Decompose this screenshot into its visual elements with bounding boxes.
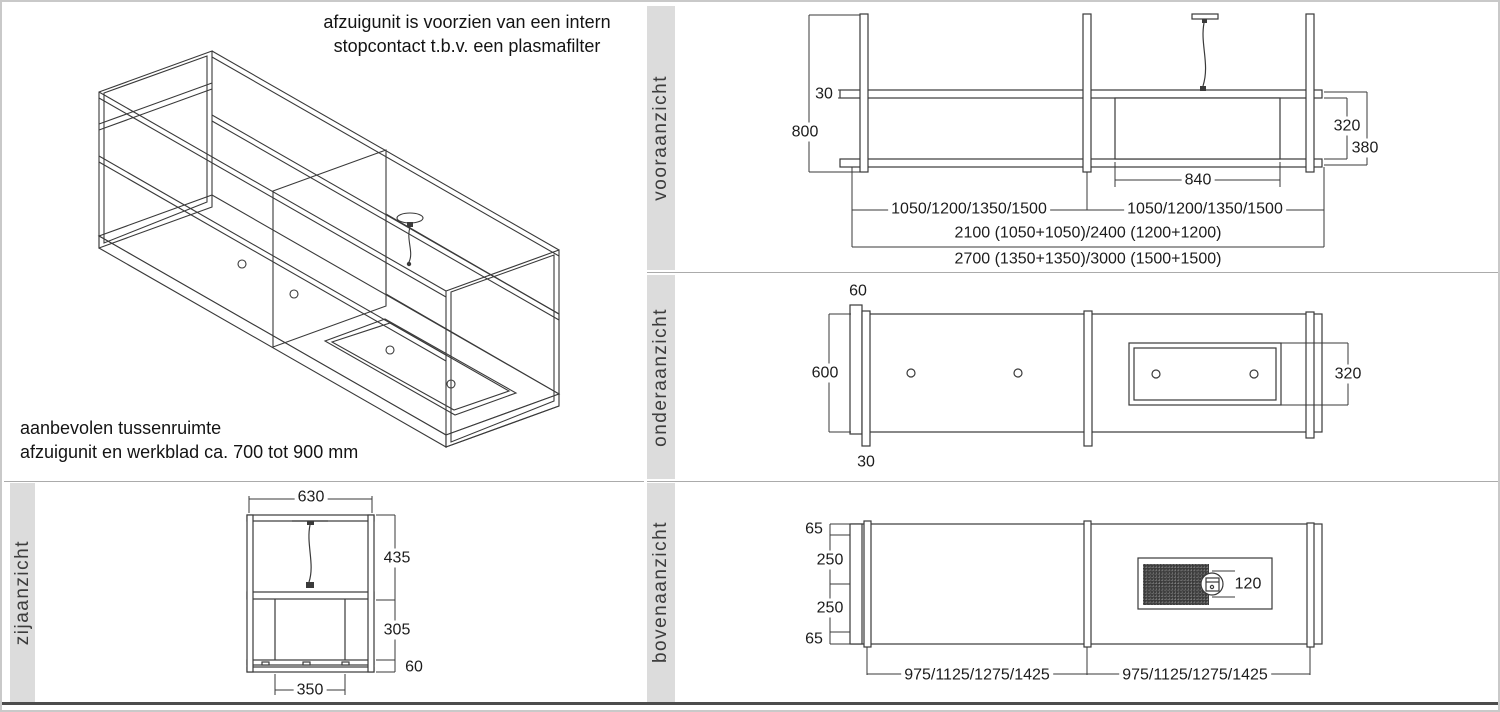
side-view-drawing — [247, 496, 395, 695]
dim-under-filter-depth: 320 — [1332, 365, 1365, 384]
iso-hint-line1: aanbevolen tussenruimte — [20, 416, 358, 440]
view-label-vooraanzicht: vooraanzicht — [650, 75, 672, 201]
divider-front-under — [647, 272, 1500, 273]
dim-front-unit-width: 840 — [1182, 171, 1215, 190]
dim-front-unit-total-height: 380 — [1349, 139, 1382, 158]
dim-top-bay-right: 975/1125/1275/1425 — [1119, 666, 1271, 685]
dim-side-inner-width: 350 — [294, 681, 327, 700]
dim-under-rail-width: 60 — [846, 282, 870, 301]
dim-front-bay-right: 1050/1200/1350/1500 — [1124, 200, 1286, 219]
dim-top-edge-bottom: 65 — [802, 630, 826, 649]
view-label-bovenaanzicht: bovenaanzicht — [650, 521, 672, 663]
dim-under-post-width: 30 — [854, 453, 878, 472]
dim-front-unit-height: 320 — [1331, 117, 1364, 136]
iso-note-line2: stopcontact t.b.v. een plasmafilter — [272, 34, 662, 58]
view-label-onderaanzicht: onderaanzicht — [650, 308, 672, 447]
dim-side-lower-height: 305 — [381, 621, 414, 640]
dim-top-edge-top: 65 — [802, 520, 826, 539]
under-view-drawing — [829, 305, 1348, 446]
dim-side-upper-height: 435 — [381, 549, 414, 568]
dim-top-bay-left: 975/1125/1275/1425 — [901, 666, 1053, 685]
dim-side-rail-height: 60 — [402, 658, 426, 677]
view-label-bar-top: bovenaanzicht — [647, 483, 675, 702]
view-label-bar-under: onderaanzicht — [647, 275, 675, 479]
isometric-drawing — [99, 51, 559, 447]
view-label-bar-side: zijaanzicht — [10, 483, 35, 702]
view-label-zijaanzicht: zijaanzicht — [12, 540, 34, 645]
iso-hint-line2: afzuigunit en werkblad ca. 700 tot 900 m… — [20, 440, 358, 464]
dim-front-frame-height: 800 — [789, 123, 822, 142]
dim-front-totals-b: 2700 (1350+1350)/3000 (1500+1500) — [952, 250, 1225, 269]
bottom-rule — [2, 702, 1500, 705]
technical-drawing-page: vooraanzicht onderaanzicht bovenaanzicht… — [0, 0, 1500, 712]
divider-iso-side — [4, 481, 644, 482]
divider-under-top — [647, 481, 1500, 482]
iso-note-line1: afzuigunit is voorzien van een intern — [272, 10, 662, 34]
iso-note: afzuigunit is voorzien van een intern st… — [272, 10, 662, 58]
dim-under-depth: 600 — [809, 364, 842, 383]
dim-front-rail-height: 30 — [812, 85, 836, 104]
drawing-linework — [2, 2, 1500, 712]
dim-front-totals-a: 2100 (1050+1050)/2400 (1200+1200) — [952, 224, 1225, 243]
top-view-drawing — [830, 521, 1322, 675]
dim-front-bay-left: 1050/1200/1350/1500 — [888, 200, 1050, 219]
iso-hint: aanbevolen tussenruimte afzuigunit en we… — [20, 416, 358, 464]
dim-top-gap-top: 250 — [814, 551, 847, 570]
dim-side-width: 630 — [295, 488, 328, 507]
dim-top-duct-diameter: 120 — [1232, 575, 1265, 594]
dim-top-gap-bottom: 250 — [814, 599, 847, 618]
